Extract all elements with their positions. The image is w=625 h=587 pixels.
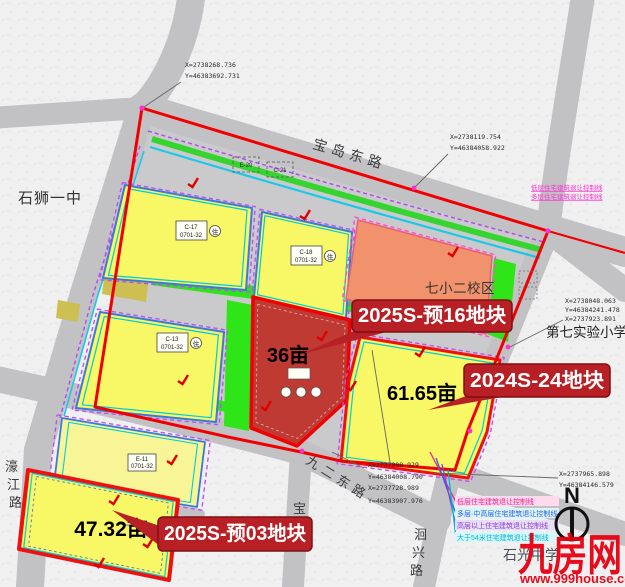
svg-text:E-20: E-20 (240, 163, 253, 169)
use-residential-icon: 住 (212, 227, 219, 236)
svg-text:路: 路 (410, 563, 423, 578)
map-canvas: C-17 0701-32 住 C-18 0701-32 住 C-13 0701-… (0, 0, 625, 587)
svg-text:Y=46384058.922: Y=46384058.922 (450, 144, 505, 152)
svg-text:C-21: C-21 (273, 168, 287, 174)
svg-text:X=2737965.898: X=2737965.898 (559, 470, 610, 478)
svg-text:路: 路 (9, 495, 22, 510)
svg-text:0701-32: 0701-32 (180, 233, 203, 239)
svg-text:X=2737908.929: X=2737908.929 (368, 461, 419, 469)
svg-text:宝: 宝 (293, 501, 306, 516)
planning-map: C-17 0701-32 住 C-18 0701-32 住 C-13 0701-… (0, 0, 625, 587)
svg-text:0701-32: 0701-32 (161, 345, 184, 351)
watermark: 九房网 www.999house.com (518, 531, 625, 586)
legend-item-2: 多层·中高层住宅建筑退让控制线 (457, 509, 557, 518)
svg-text:0701-32: 0701-32 (295, 258, 318, 264)
svg-text:0701-32: 0701-32 (131, 464, 154, 470)
watermark-url: www.999house.com (519, 571, 625, 586)
svg-text:X=2738268.736: X=2738268.736 (185, 61, 236, 69)
svg-text:C-17: C-17 (184, 225, 198, 231)
label-shishi-yizhong: 石狮一中 (18, 190, 82, 207)
label-diqi-shiyan: 第七实验小学 (546, 324, 625, 340)
svg-text:Y=46384008.790: Y=46384008.790 (368, 473, 423, 481)
svg-text:兴: 兴 (412, 545, 425, 560)
svg-text:Y=46384241.478: Y=46384241.478 (565, 306, 620, 314)
svg-text:X=2738048.063: X=2738048.063 (565, 297, 616, 305)
svg-text:低层住宅建筑退让控制线: 低层住宅建筑退让控制线 (531, 183, 603, 192)
svg-text:X=2737923.891: X=2737923.891 (565, 315, 616, 323)
svg-text:C-18: C-18 (299, 250, 313, 256)
svg-text:Y=46383692.731: Y=46383692.731 (185, 72, 240, 80)
callout-s24-label: 2024S-24地块 (470, 369, 605, 392)
svg-text:濠: 濠 (5, 459, 18, 474)
legend-item-1: 低层住宅建筑退让控制线 (457, 497, 534, 506)
coord-group-3: X=2738048.063 Y=46384241.478 X=2737923.8… (565, 297, 620, 323)
codebox-e11: E-11 0701-32 (128, 454, 156, 471)
svg-text:江: 江 (7, 477, 20, 492)
svg-text:X=2737728.989: X=2737728.989 (368, 484, 419, 492)
callout-pre03-label: 2025S-预03地块 (164, 522, 307, 545)
svg-text:洄: 洄 (414, 527, 427, 542)
road-west-spur (0, 108, 142, 118)
use-residential-icon: 住 (327, 252, 334, 261)
svg-text:Y=46383907.976: Y=46383907.976 (368, 497, 423, 505)
svg-text:E-11: E-11 (136, 457, 149, 463)
use-residential-icon: 住 (193, 339, 200, 348)
legend-item-3: 高层以上住宅建筑退让控制线 (457, 521, 548, 530)
area-label-6165mu: 61.65亩 (387, 381, 457, 405)
area-label-36mu: 36亩 (267, 343, 309, 367)
svg-text:C-13: C-13 (165, 337, 179, 343)
svg-text:X=2738119.754: X=2738119.754 (450, 133, 501, 141)
label-qixiao-campus: 七小二校区 (425, 280, 495, 296)
compass-n-label: N (564, 483, 580, 508)
svg-text:多层住宅建筑退让控制线: 多层住宅建筑退让控制线 (531, 192, 603, 201)
callout-pre16-label: 2025S-预16地块 (358, 304, 507, 327)
